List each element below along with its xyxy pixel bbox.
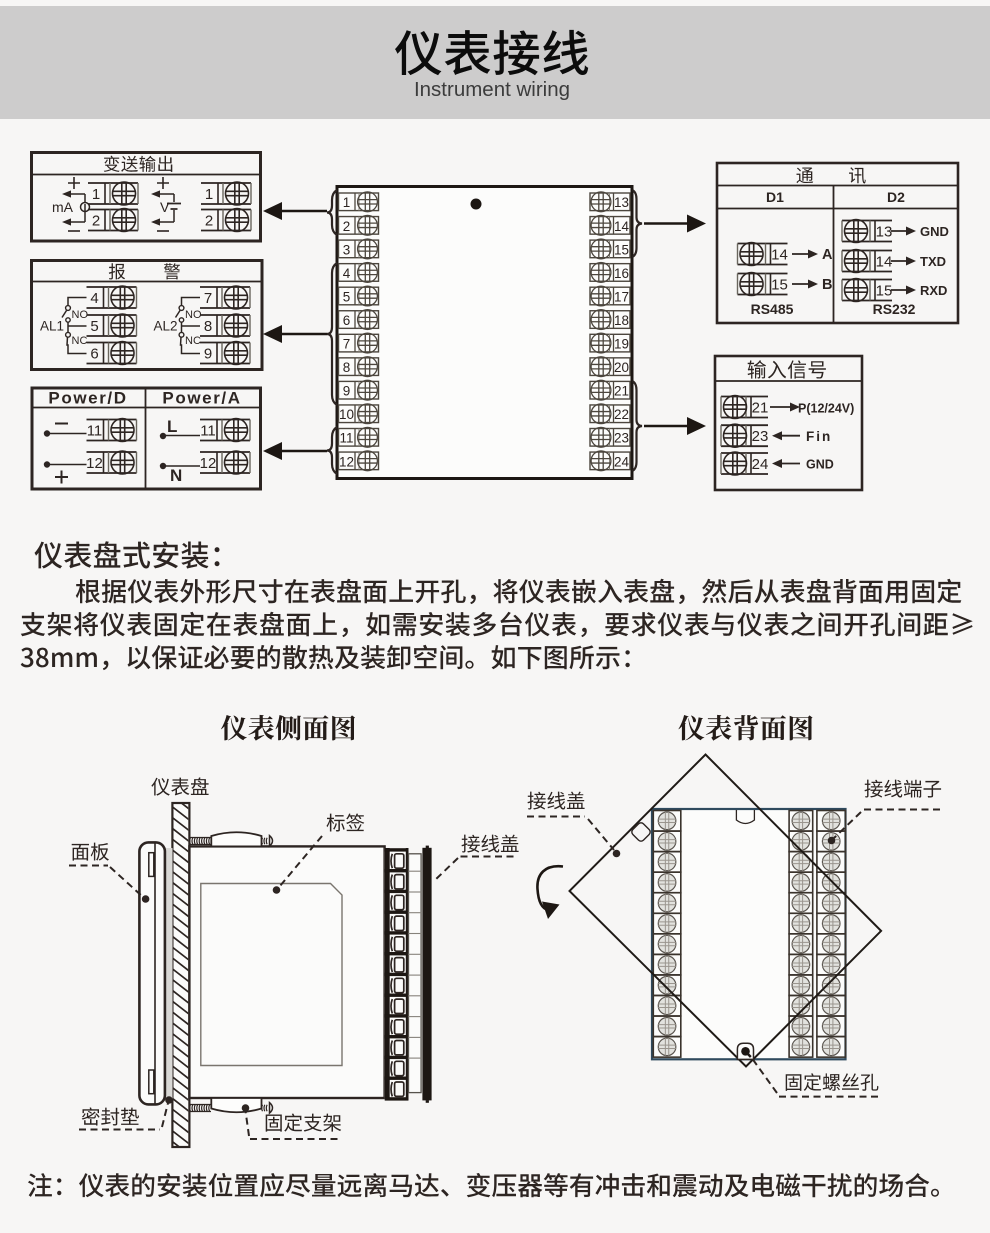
svg-text:24: 24: [752, 456, 769, 473]
svg-text:NO: NO: [72, 309, 89, 321]
svg-text:NC: NC: [185, 335, 201, 347]
svg-text:7: 7: [343, 337, 351, 352]
svg-text:AL1: AL1: [40, 319, 64, 334]
svg-text:23: 23: [614, 431, 629, 446]
svg-text:14: 14: [614, 219, 630, 234]
svg-text:B: B: [822, 277, 832, 293]
svg-text:9: 9: [343, 384, 351, 399]
svg-text:10: 10: [339, 407, 354, 422]
svg-text:15: 15: [876, 283, 893, 300]
svg-text:A: A: [822, 247, 833, 263]
svg-text:4: 4: [90, 290, 98, 307]
svg-text:1: 1: [92, 186, 100, 203]
svg-text:9: 9: [204, 346, 212, 363]
svg-text:20: 20: [614, 360, 629, 375]
svg-text:GND: GND: [920, 224, 949, 239]
svg-text:12: 12: [86, 455, 103, 472]
svg-text:GND: GND: [806, 458, 834, 472]
svg-text:5: 5: [90, 318, 98, 335]
svg-text:D2: D2: [887, 189, 905, 205]
svg-text:1: 1: [205, 186, 213, 203]
svg-text:2: 2: [92, 213, 100, 230]
svg-text:8: 8: [204, 318, 212, 335]
svg-text:AL2: AL2: [154, 319, 178, 334]
svg-text:L: L: [167, 417, 177, 436]
svg-text:11: 11: [87, 423, 103, 440]
svg-text:4: 4: [343, 266, 351, 281]
svg-text:15: 15: [771, 277, 788, 294]
svg-text:11: 11: [339, 431, 353, 446]
svg-text:22: 22: [614, 407, 629, 422]
svg-text:7: 7: [204, 290, 212, 307]
svg-text:21: 21: [752, 400, 769, 417]
svg-text:14: 14: [876, 254, 893, 271]
svg-text:mA: mA: [52, 199, 74, 215]
svg-text:Instrument wiring: Instrument wiring: [414, 78, 570, 101]
svg-text:6: 6: [343, 313, 351, 328]
svg-text:23: 23: [752, 428, 769, 445]
svg-text:TXD: TXD: [920, 254, 946, 269]
svg-text:V: V: [160, 199, 170, 215]
svg-text:RXD: RXD: [920, 283, 947, 298]
svg-text:1: 1: [343, 195, 351, 210]
svg-text:12: 12: [200, 455, 217, 472]
svg-text:13: 13: [876, 224, 893, 241]
svg-text:RS485: RS485: [751, 301, 794, 317]
svg-text:8: 8: [343, 360, 351, 375]
svg-text:Fin: Fin: [806, 429, 832, 444]
svg-text:P(12/24V): P(12/24V): [798, 402, 854, 416]
svg-text:17: 17: [614, 289, 629, 304]
svg-text:14: 14: [771, 247, 788, 264]
svg-text:2: 2: [205, 213, 213, 230]
svg-text:Power/D: Power/D: [48, 389, 127, 408]
svg-text:RS232: RS232: [873, 301, 916, 317]
svg-text:16: 16: [614, 266, 629, 281]
svg-text:N: N: [170, 466, 182, 485]
svg-text:NC: NC: [72, 335, 88, 347]
svg-text:13: 13: [614, 195, 629, 210]
svg-text:NO: NO: [185, 309, 202, 321]
svg-text:12: 12: [339, 454, 354, 469]
svg-text:3: 3: [343, 242, 351, 257]
svg-text:2: 2: [343, 219, 351, 234]
svg-text:Power/A: Power/A: [162, 389, 241, 408]
svg-text:18: 18: [614, 313, 629, 328]
svg-text:11: 11: [200, 423, 216, 440]
svg-text:19: 19: [614, 337, 629, 352]
svg-text:D1: D1: [766, 189, 784, 205]
svg-text:5: 5: [343, 289, 351, 304]
svg-text:6: 6: [90, 346, 98, 363]
svg-text:15: 15: [614, 242, 629, 257]
svg-text:21: 21: [614, 384, 629, 399]
svg-text:24: 24: [614, 454, 630, 469]
